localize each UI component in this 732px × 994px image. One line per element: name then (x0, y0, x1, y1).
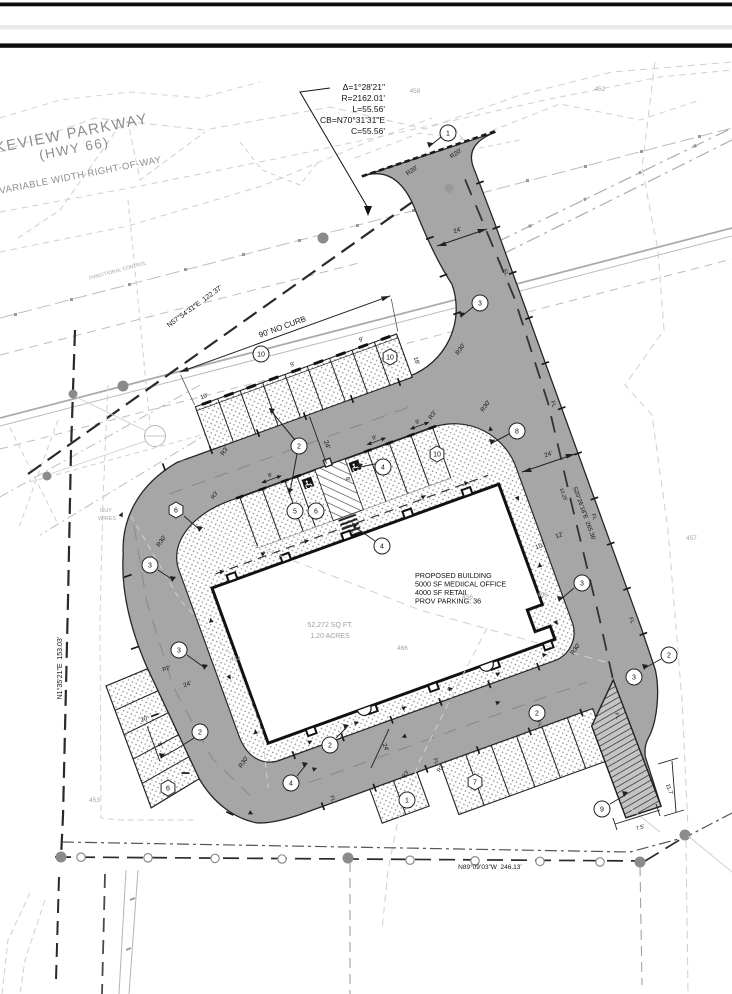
svg-text:7: 7 (473, 780, 477, 787)
svg-text:52,272 SQ FT.: 52,272 SQ FT. (307, 622, 352, 629)
svg-text:3: 3 (580, 581, 584, 588)
svg-text:8: 8 (515, 429, 519, 436)
svg-text:2: 2 (297, 444, 301, 451)
svg-text:N1°35’21”E 153.03’: N1°35’21”E 153.03’ (56, 636, 64, 699)
svg-text:452: 452 (595, 86, 606, 93)
svg-text:1.20 ACRES: 1.20 ACRES (310, 633, 350, 640)
svg-text:CB=N70°31'31"E: CB=N70°31'31"E (320, 115, 385, 125)
svg-text:9: 9 (600, 807, 604, 814)
svg-text:456: 456 (537, 592, 548, 599)
svg-text:2: 2 (198, 730, 202, 737)
svg-text:GUY: GUY (100, 508, 112, 514)
svg-text:3: 3 (148, 563, 152, 570)
svg-text:POLE: POLE (181, 468, 196, 474)
svg-text:453: 453 (89, 797, 100, 804)
svg-text:3: 3 (478, 301, 482, 308)
svg-text:Δ=1°28'21": Δ=1°28'21" (343, 82, 385, 92)
svg-text:C=55.56': C=55.56' (351, 126, 385, 136)
svg-text:4: 4 (289, 781, 293, 788)
svg-text:3: 3 (632, 675, 636, 682)
svg-text:10: 10 (257, 352, 265, 359)
svg-text:STEEL: STEEL (180, 460, 197, 466)
svg-text:457: 457 (686, 535, 697, 542)
svg-text:6: 6 (166, 786, 170, 793)
svg-text:3: 3 (177, 648, 181, 655)
svg-text:R=2162.01': R=2162.01' (342, 93, 386, 103)
svg-text:10: 10 (386, 355, 394, 362)
svg-text:6: 6 (174, 508, 178, 515)
svg-text:456: 456 (462, 594, 473, 601)
svg-text:2: 2 (328, 743, 332, 750)
svg-text:2: 2 (535, 711, 539, 718)
svg-text:5: 5 (293, 509, 297, 516)
svg-text:L=55.56': L=55.56' (352, 104, 385, 114)
svg-text:4: 4 (381, 465, 385, 472)
svg-text:458: 458 (410, 88, 421, 95)
svg-text:466: 466 (397, 645, 408, 652)
svg-text:4: 4 (380, 544, 384, 551)
svg-text:N89°09’03”W 246.13’: N89°09’03”W 246.13’ (458, 863, 522, 871)
svg-text:6: 6 (314, 509, 318, 516)
svg-text:1: 1 (446, 131, 450, 138)
svg-text:WIRES: WIRES (98, 516, 116, 522)
svg-text:10: 10 (433, 452, 441, 459)
svg-text:1: 1 (405, 798, 409, 805)
svg-text:2: 2 (667, 653, 671, 660)
